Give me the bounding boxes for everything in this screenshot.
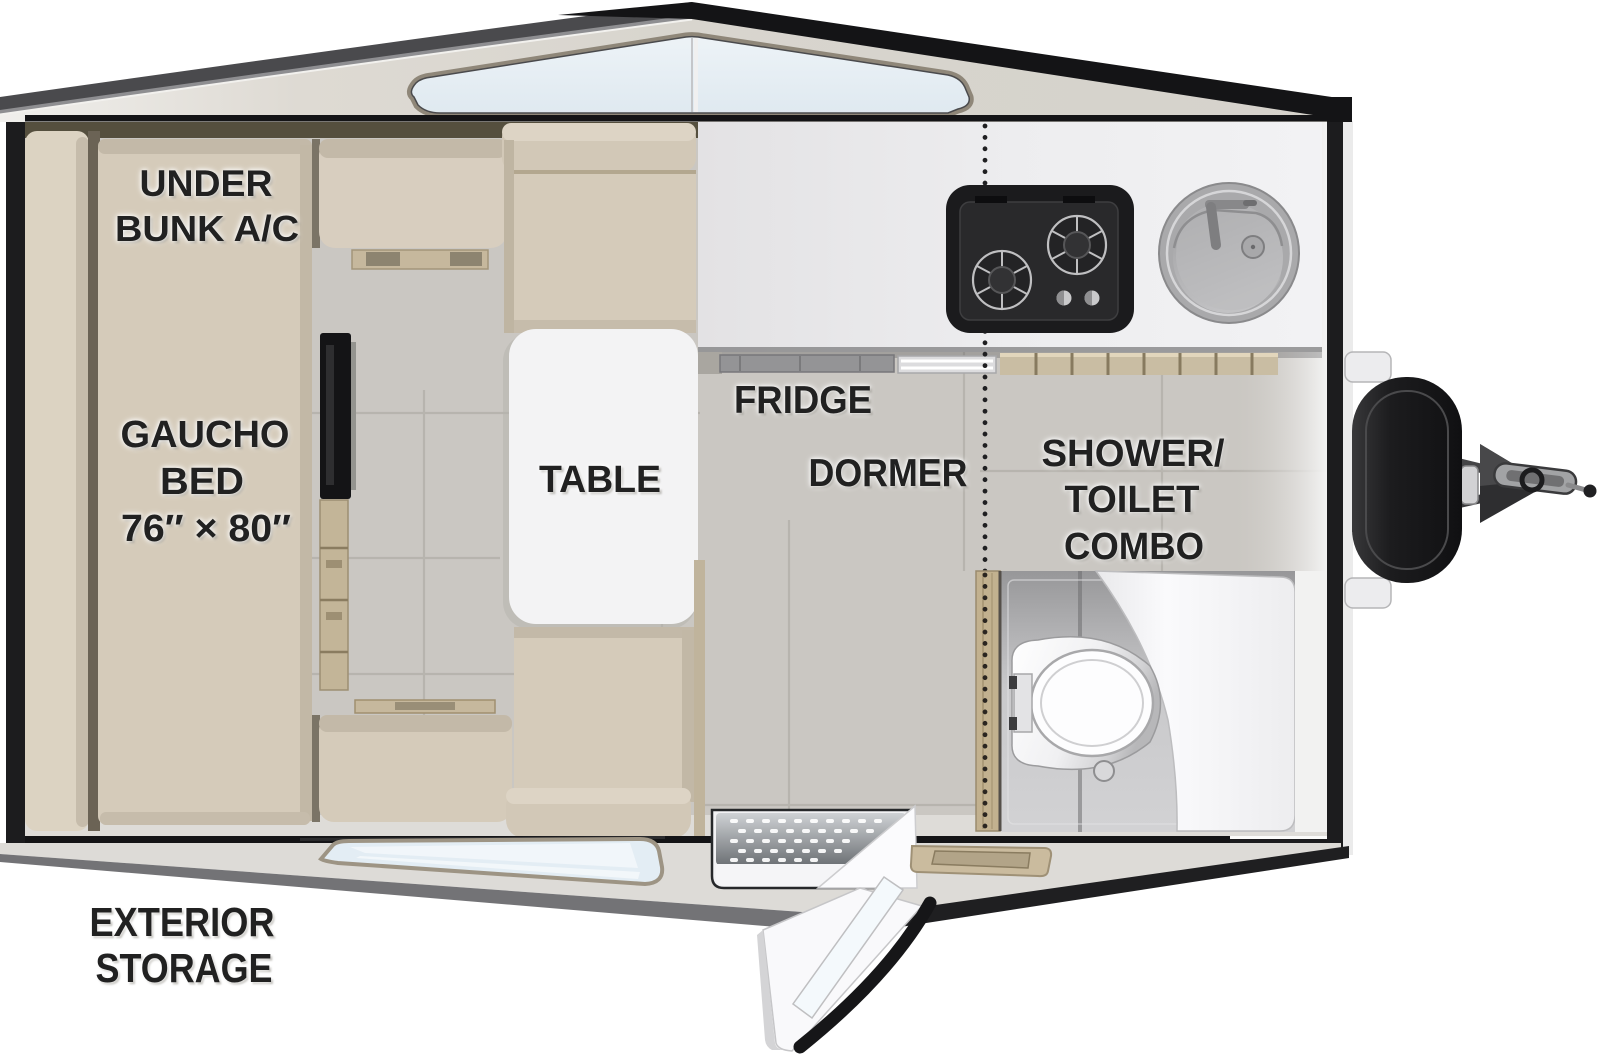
svg-text:GAUCHO: GAUCHO [121,414,290,456]
svg-text:TOILET: TOILET [1065,479,1200,521]
svg-text:COMBO: COMBO [1064,526,1204,568]
svg-text:BED: BED [160,461,244,503]
svg-text:SHOWER/: SHOWER/ [1042,433,1225,475]
svg-text:FRIDGE: FRIDGE [734,379,872,422]
svg-text:STORAGE: STORAGE [96,945,273,991]
svg-text:UNDER: UNDER [140,163,273,204]
svg-text:76″ × 80″: 76″ × 80″ [121,508,291,550]
svg-text:DORMER: DORMER [809,452,968,495]
svg-text:TABLE: TABLE [539,459,661,501]
svg-text:EXTERIOR: EXTERIOR [90,899,275,945]
svg-text:BUNK A/C: BUNK A/C [115,208,299,249]
